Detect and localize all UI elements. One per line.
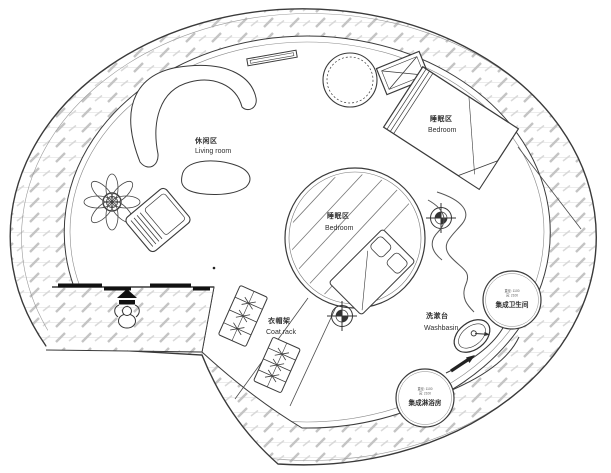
tv-shelf: [247, 50, 297, 66]
label-washbasin-zh: 洗漱台: [426, 311, 449, 320]
shower-pod-label: 集成淋浴房: [408, 398, 442, 407]
label-living-room-en: Living room: [195, 148, 231, 155]
bathroom-pod-label: 集成卫生间: [495, 300, 529, 309]
floor-plan-drawing: 直径: 1100 高: 2100 集成卫生间 直径: 1100 高: 2100 …: [0, 0, 611, 473]
bathroom-pod-spec-diameter: 直径: 1100: [505, 288, 520, 293]
label-washbasin-en: Washbasin: [424, 325, 458, 332]
sofa: [131, 65, 256, 167]
dot-marker: [213, 267, 216, 270]
label-living-room-zh: 休闲区: [194, 136, 218, 145]
washbasin-icon: [448, 313, 496, 359]
shower-pod-spec-height: 高: 2100: [419, 391, 431, 396]
label-bedroom-center-zh: 睡眠区: [327, 211, 350, 220]
lounge-chair: [124, 186, 192, 253]
bathroom-pod: 直径: 1100 高: 2100 集成卫生间: [483, 271, 541, 329]
floor-plan: 直径: 1100 高: 2100 集成卫生间 直径: 1100 高: 2100 …: [0, 0, 611, 473]
round-table: [323, 53, 377, 107]
coat-rack-unit: [218, 285, 267, 347]
label-bedroom-upper-zh: 睡眠区: [430, 114, 453, 123]
coat-rack-unit: [254, 337, 301, 393]
shower-pod: 直径: 1100 高: 2100 集成淋浴房: [396, 369, 454, 427]
bathroom-pod-spec-height: 高: 2100: [506, 293, 518, 298]
coffee-table: [182, 161, 250, 195]
entrance-walkway: [46, 284, 214, 353]
shower-pod-spec-diameter: 直径: 1100: [418, 386, 433, 391]
label-coat-rack-en: Coat rack: [266, 329, 296, 336]
label-bedroom-center-en: Bedroom: [325, 225, 354, 232]
label-bedroom-upper-en: Bedroom: [428, 127, 457, 134]
label-coat-rack-zh: 衣帽架: [268, 316, 291, 325]
